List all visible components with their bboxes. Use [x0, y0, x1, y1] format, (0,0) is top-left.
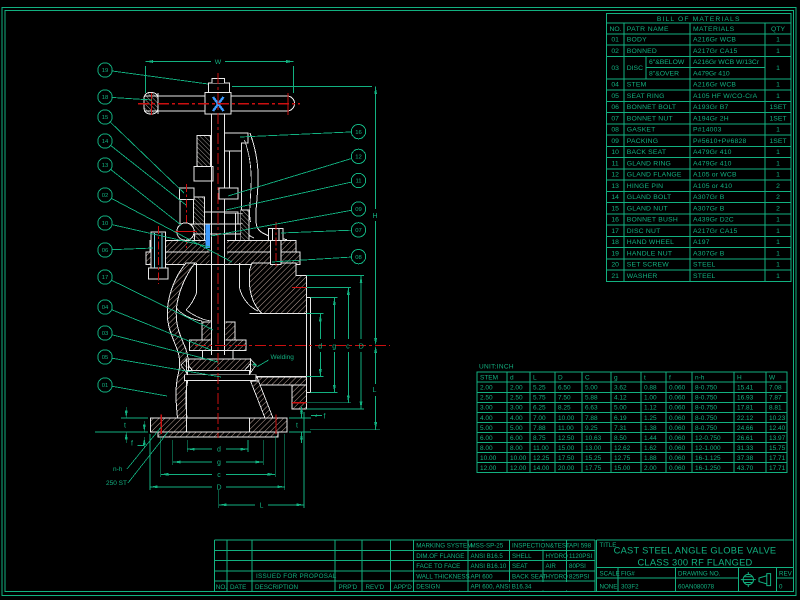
svg-text:5.25: 5.25 [533, 385, 546, 392]
svg-text:80PSI: 80PSI [569, 563, 586, 570]
svg-text:10: 10 [611, 149, 619, 156]
svg-text:12: 12 [611, 172, 619, 179]
svg-text:17.71: 17.71 [769, 455, 786, 462]
svg-text:6.25: 6.25 [533, 405, 546, 412]
svg-text:BODY: BODY [627, 37, 647, 44]
svg-text:P#14003: P#14003 [693, 127, 722, 134]
svg-text:HYDRO: HYDRO [546, 573, 569, 580]
svg-text:MATERIALS: MATERIALS [693, 26, 735, 33]
svg-text:0.060: 0.060 [669, 425, 686, 432]
svg-text:INSPECTION&TEST: INSPECTION&TEST [512, 543, 570, 550]
svg-text:10.00: 10.00 [510, 455, 527, 462]
svg-text:825PSI: 825PSI [569, 573, 590, 580]
svg-text:24.66: 24.66 [737, 425, 754, 432]
svg-text:2.00: 2.00 [644, 465, 657, 472]
svg-text:A193Gr B7: A193Gr B7 [693, 104, 728, 111]
svg-text:g: g [614, 375, 618, 382]
svg-text:A307Gr B: A307Gr B [693, 250, 725, 257]
svg-text:GLAND FLANGE: GLAND FLANGE [627, 172, 682, 179]
svg-text:303F2: 303F2 [621, 584, 639, 591]
svg-text:20: 20 [611, 262, 619, 269]
svg-text:PACKING: PACKING [627, 138, 659, 145]
svg-text:H: H [373, 213, 378, 220]
svg-text:A216Gr WCB: A216Gr WCB [693, 82, 736, 89]
svg-text:DATE: DATE [230, 584, 246, 591]
svg-text:12.25: 12.25 [533, 455, 550, 462]
svg-text:15.41: 15.41 [737, 385, 754, 392]
svg-text:UNIT:INCH: UNIT:INCH [479, 364, 514, 371]
svg-text:15.00: 15.00 [558, 445, 575, 452]
svg-text:8-0.750: 8-0.750 [695, 425, 717, 432]
svg-text:19: 19 [611, 250, 619, 257]
svg-text:8-0.750: 8-0.750 [695, 405, 717, 412]
svg-text:12.62: 12.62 [614, 445, 631, 452]
svg-text:0.060: 0.060 [669, 385, 686, 392]
svg-text:A216Gr WCB W/13Cr: A216Gr WCB W/13Cr [693, 59, 760, 66]
svg-text:2: 2 [776, 194, 780, 201]
svg-text:01: 01 [102, 383, 109, 389]
svg-text:8-0.750: 8-0.750 [695, 385, 717, 392]
svg-text:A307Gr B: A307Gr B [693, 194, 725, 201]
svg-text:14.00: 14.00 [533, 465, 550, 472]
svg-text:07: 07 [355, 228, 362, 234]
svg-text:1SET: 1SET [770, 138, 787, 145]
svg-text:t: t [124, 423, 126, 430]
svg-text:HANDLE NUT: HANDLE NUT [627, 250, 672, 257]
svg-text:3.00: 3.00 [480, 405, 493, 412]
svg-text:8.75: 8.75 [533, 435, 546, 442]
svg-text:1: 1 [776, 250, 780, 257]
svg-text:13.00: 13.00 [585, 445, 602, 452]
svg-text:16-1.125: 16-1.125 [695, 455, 721, 462]
svg-text:WASHER: WASHER [627, 273, 658, 280]
svg-text:1SET: 1SET [770, 115, 787, 122]
svg-text:0.060: 0.060 [669, 395, 686, 402]
svg-text:9.25: 9.25 [585, 425, 598, 432]
svg-text:15.00: 15.00 [614, 465, 631, 472]
svg-text:01: 01 [611, 37, 619, 44]
svg-text:03: 03 [611, 65, 619, 72]
svg-text:14: 14 [611, 194, 619, 201]
svg-text:A105 or 410: A105 or 410 [693, 183, 732, 190]
svg-text:1: 1 [776, 160, 780, 167]
svg-text:DISC: DISC [627, 65, 643, 72]
svg-text:A479Gr 410: A479Gr 410 [693, 70, 730, 77]
svg-text:08: 08 [355, 255, 362, 261]
svg-text:ANSI B16.5: ANSI B16.5 [471, 553, 504, 560]
svg-text:1: 1 [776, 273, 780, 280]
svg-text:5.00: 5.00 [480, 425, 493, 432]
svg-text:06: 06 [102, 248, 109, 254]
svg-text:06: 06 [611, 104, 619, 111]
svg-text:BILL OF MATERIALS: BILL OF MATERIALS [657, 16, 741, 23]
svg-text:STEEL: STEEL [693, 262, 716, 269]
svg-text:SEAT: SEAT [512, 563, 528, 570]
svg-text:8.00: 8.00 [480, 445, 493, 452]
svg-text:1: 1 [776, 127, 780, 134]
svg-text:d: d [318, 343, 322, 350]
svg-text:02: 02 [611, 48, 619, 55]
svg-text:f: f [669, 375, 671, 382]
svg-text:Welding: Welding [271, 354, 295, 361]
svg-text:2: 2 [776, 183, 780, 190]
svg-text:REV'D: REV'D [366, 584, 385, 591]
svg-text:10.00: 10.00 [558, 415, 575, 422]
svg-text:0.060: 0.060 [669, 455, 686, 462]
svg-text:NO.: NO. [610, 26, 622, 33]
svg-text:09: 09 [355, 207, 362, 213]
svg-text:11: 11 [612, 160, 619, 167]
svg-text:g: g [217, 460, 221, 467]
svg-text:1: 1 [776, 37, 780, 44]
svg-text:A307Gr B: A307Gr B [693, 205, 725, 212]
svg-text:GLAND BOLT: GLAND BOLT [627, 194, 672, 201]
svg-text:12.75: 12.75 [614, 455, 631, 462]
svg-text:5.00: 5.00 [510, 425, 523, 432]
svg-text:8"&OVER: 8"&OVER [649, 70, 679, 77]
svg-text:SEAT RING: SEAT RING [627, 93, 665, 100]
svg-text:L: L [260, 502, 264, 509]
svg-text:16-1.250: 16-1.250 [695, 465, 721, 472]
svg-text:WALL THICKNESS: WALL THICKNESS [416, 573, 469, 580]
svg-text:10.00: 10.00 [480, 455, 497, 462]
svg-text:MSS-SP-25: MSS-SP-25 [471, 543, 504, 550]
svg-text:8.50: 8.50 [614, 435, 627, 442]
svg-text:A105 HF W/CO-CrA: A105 HF W/CO-CrA [693, 93, 758, 100]
svg-text:250 ST: 250 ST [106, 480, 127, 487]
svg-text:11.00: 11.00 [558, 425, 574, 432]
svg-text:10: 10 [102, 221, 109, 227]
svg-text:15: 15 [611, 205, 619, 212]
svg-text:API 600, ANSI B16.34: API 600, ANSI B16.34 [471, 584, 532, 591]
svg-text:16.93: 16.93 [737, 395, 754, 402]
svg-text:D: D [359, 343, 364, 350]
svg-text:W: W [769, 375, 776, 382]
svg-text:6.63: 6.63 [585, 405, 598, 412]
svg-text:GLAND RING: GLAND RING [627, 160, 671, 167]
svg-text:8.25: 8.25 [558, 405, 571, 412]
svg-text:FACE TO FACE: FACE TO FACE [416, 563, 460, 570]
svg-text:n-h: n-h [695, 375, 705, 382]
svg-text:n-h: n-h [113, 466, 123, 473]
svg-text:13: 13 [611, 183, 619, 190]
svg-text:HAND WHEEL: HAND WHEEL [627, 239, 674, 246]
svg-text:t: t [296, 423, 298, 430]
svg-text:7.08: 7.08 [769, 385, 782, 392]
svg-text:60AN080078: 60AN080078 [678, 584, 715, 591]
svg-text:CLASS 300 RF FLANGED: CLASS 300 RF FLANGED [637, 557, 752, 567]
svg-text:ISSUED FOR PROPOSAL: ISSUED FOR PROPOSAL [256, 573, 337, 580]
svg-text:4.12: 4.12 [614, 395, 627, 402]
svg-text:NO.: NO. [216, 584, 227, 591]
svg-text:DISC NUT: DISC NUT [627, 228, 661, 235]
svg-text:1.44: 1.44 [644, 435, 657, 442]
svg-text:31.33: 31.33 [737, 445, 754, 452]
svg-text:20.00: 20.00 [558, 465, 575, 472]
svg-text:f: f [131, 441, 133, 448]
svg-text:1.88: 1.88 [644, 455, 657, 462]
svg-text:FIG#: FIG# [621, 570, 635, 577]
svg-text:11: 11 [355, 179, 361, 185]
svg-text:5.75: 5.75 [533, 395, 546, 402]
svg-text:03: 03 [102, 331, 109, 337]
svg-text:C: C [585, 375, 590, 382]
svg-text:13.97: 13.97 [769, 435, 786, 442]
svg-text:STEM: STEM [480, 375, 498, 382]
svg-text:DRAWING NO.: DRAWING NO. [678, 570, 721, 577]
svg-text:5.00: 5.00 [585, 385, 598, 392]
svg-text:3.00: 3.00 [510, 405, 523, 412]
svg-text:4.00: 4.00 [510, 415, 523, 422]
svg-text:7.00: 7.00 [533, 415, 546, 422]
svg-text:A479Gr 410: A479Gr 410 [693, 149, 732, 156]
svg-text:L: L [373, 387, 377, 394]
svg-text:1: 1 [776, 172, 780, 179]
svg-text:d: d [217, 447, 221, 454]
svg-text:1120PSI: 1120PSI [569, 553, 593, 560]
svg-text:18: 18 [102, 95, 109, 101]
svg-text:1: 1 [776, 239, 780, 246]
svg-text:0.060: 0.060 [669, 465, 686, 472]
svg-text:10.23: 10.23 [769, 415, 786, 422]
svg-text:1.00: 1.00 [644, 395, 657, 402]
svg-text:SHELL: SHELL [512, 553, 532, 560]
svg-text:1: 1 [776, 48, 780, 55]
svg-text:GLAND NUT: GLAND NUT [627, 205, 668, 212]
svg-text:BACK SEAT: BACK SEAT [627, 149, 666, 156]
svg-text:GASKET: GASKET [627, 127, 656, 134]
svg-text:H: H [737, 375, 742, 382]
svg-text:17.81: 17.81 [737, 405, 754, 412]
svg-text:13: 13 [102, 163, 109, 169]
svg-text:ANSI B16.10: ANSI B16.10 [471, 563, 507, 570]
svg-text:12-1.000: 12-1.000 [695, 445, 721, 452]
svg-text:8.00: 8.00 [510, 445, 523, 452]
svg-text:15.25: 15.25 [585, 455, 602, 462]
svg-text:1: 1 [776, 217, 780, 224]
svg-text:HINGE PIN: HINGE PIN [627, 183, 664, 190]
svg-text:11.00: 11.00 [533, 445, 549, 452]
svg-text:f: f [324, 414, 326, 421]
svg-text:22.12: 22.12 [737, 415, 754, 422]
svg-text:6.00: 6.00 [510, 435, 523, 442]
svg-text:BONNET NUT: BONNET NUT [627, 115, 673, 122]
svg-text:BONNED: BONNED [627, 48, 657, 55]
svg-text:43.70: 43.70 [737, 465, 754, 472]
svg-text:4.00: 4.00 [480, 415, 493, 422]
svg-text:7.50: 7.50 [558, 395, 571, 402]
svg-text:A217Gr CA15: A217Gr CA15 [693, 48, 738, 55]
svg-text:1: 1 [776, 82, 780, 89]
svg-text:2: 2 [776, 205, 780, 212]
svg-text:5.00: 5.00 [614, 405, 627, 412]
svg-text:15.75: 15.75 [769, 445, 786, 452]
svg-text:17.50: 17.50 [558, 455, 575, 462]
svg-text:6.00: 6.00 [480, 435, 493, 442]
svg-text:19: 19 [102, 68, 109, 74]
svg-text:0.060: 0.060 [669, 445, 686, 452]
svg-text:16: 16 [355, 130, 362, 136]
svg-text:A105 or WCB: A105 or WCB [693, 172, 737, 179]
svg-text:15: 15 [102, 115, 109, 121]
svg-text:STEEL: STEEL [693, 273, 716, 280]
svg-text:37.38: 37.38 [737, 455, 754, 462]
svg-text:c: c [217, 472, 221, 479]
svg-text:1.12: 1.12 [644, 405, 657, 412]
svg-text:SET SCREW: SET SCREW [627, 262, 669, 269]
svg-text:1: 1 [776, 149, 780, 156]
svg-text:09: 09 [611, 138, 619, 145]
svg-text:DIM.OF FLANGE: DIM.OF FLANGE [416, 553, 464, 560]
svg-text:7.88: 7.88 [533, 425, 546, 432]
svg-text:L: L [533, 375, 537, 382]
svg-text:HYDRO: HYDRO [546, 553, 569, 560]
svg-text:14: 14 [102, 139, 109, 145]
svg-text:0.060: 0.060 [669, 435, 686, 442]
svg-text:PRP'D: PRP'D [339, 584, 358, 591]
svg-text:W: W [215, 59, 222, 66]
svg-text:QTY: QTY [771, 26, 785, 33]
svg-text:12: 12 [355, 155, 362, 161]
svg-text:7.31: 7.31 [614, 425, 627, 432]
svg-text:2.00: 2.00 [480, 385, 493, 392]
svg-text:1.25: 1.25 [644, 415, 657, 422]
svg-text:7.88: 7.88 [585, 415, 598, 422]
svg-text:2.50: 2.50 [480, 395, 493, 402]
svg-text:08: 08 [611, 127, 619, 134]
svg-text:21: 21 [611, 273, 619, 280]
svg-text:SCALE: SCALE [600, 570, 620, 577]
svg-text:05: 05 [102, 355, 109, 361]
svg-text:NONE: NONE [600, 584, 618, 591]
svg-text:6"&BELOW: 6"&BELOW [649, 59, 685, 66]
svg-text:A439Gr D2C: A439Gr D2C [693, 217, 734, 224]
svg-text:P#5610+P#6828: P#5610+P#6828 [693, 138, 746, 145]
svg-text:02: 02 [102, 193, 109, 199]
svg-text:1: 1 [776, 65, 780, 72]
svg-text:BACK SEAT: BACK SEAT [512, 573, 546, 580]
svg-text:STEM: STEM [627, 82, 647, 89]
svg-text:A197: A197 [693, 239, 710, 246]
svg-text:D: D [558, 375, 563, 382]
svg-text:0.060: 0.060 [669, 405, 686, 412]
svg-text:10.63: 10.63 [585, 435, 602, 442]
svg-text:7.87: 7.87 [769, 395, 782, 402]
svg-text:8.81: 8.81 [769, 405, 782, 412]
svg-text:PATR NAME: PATR NAME [627, 26, 669, 33]
svg-text:A217Gr CA15: A217Gr CA15 [693, 228, 738, 235]
svg-text:17.71: 17.71 [769, 465, 786, 472]
svg-text:CAST STEEL ANGLE GLOBE VALVE: CAST STEEL ANGLE GLOBE VALVE [614, 546, 777, 556]
svg-text:1.62: 1.62 [644, 445, 657, 452]
svg-text:1: 1 [776, 228, 780, 235]
svg-text:1: 1 [776, 93, 780, 100]
svg-text:0.88: 0.88 [644, 385, 657, 392]
svg-text:26.61: 26.61 [737, 435, 754, 442]
svg-text:g: g [332, 343, 336, 350]
svg-text:1.38: 1.38 [644, 425, 657, 432]
svg-text:API 598: API 598 [569, 543, 592, 550]
svg-text:12.40: 12.40 [769, 425, 786, 432]
svg-text:1SET: 1SET [770, 104, 787, 111]
svg-text:AIR: AIR [546, 563, 557, 570]
svg-text:18: 18 [611, 239, 619, 246]
svg-text:16: 16 [611, 217, 619, 224]
svg-text:07: 07 [611, 115, 619, 122]
svg-text:REV: REV [779, 570, 793, 577]
svg-text:12.50: 12.50 [558, 435, 575, 442]
svg-text:MARKING SYSTEM: MARKING SYSTEM [416, 543, 472, 550]
svg-text:12.00: 12.00 [510, 465, 527, 472]
svg-text:c: c [346, 343, 350, 350]
svg-text:17: 17 [611, 228, 619, 235]
svg-text:A479Gr 410: A479Gr 410 [693, 160, 732, 167]
svg-text:BONNET BUSH: BONNET BUSH [627, 217, 678, 224]
svg-text:6.50: 6.50 [558, 385, 571, 392]
svg-text:3.62: 3.62 [614, 385, 627, 392]
svg-text:12-0.750: 12-0.750 [695, 435, 721, 442]
svg-text:0.060: 0.060 [669, 415, 686, 422]
svg-text:6.19: 6.19 [614, 415, 627, 422]
svg-text:5.88: 5.88 [585, 395, 598, 402]
svg-text:17.75: 17.75 [585, 465, 602, 472]
svg-text:04: 04 [611, 82, 619, 89]
svg-text:d: d [510, 375, 514, 382]
svg-text:0: 0 [779, 584, 783, 591]
svg-text:8-0.750: 8-0.750 [695, 395, 717, 402]
svg-text:t: t [644, 375, 646, 382]
svg-text:DESIGN: DESIGN [416, 584, 440, 591]
svg-text:8-0.750: 8-0.750 [695, 415, 717, 422]
svg-text:17: 17 [102, 275, 109, 281]
svg-text:12.00: 12.00 [480, 465, 497, 472]
svg-text:05: 05 [611, 93, 619, 100]
svg-text:2.50: 2.50 [510, 395, 523, 402]
svg-text:BONNET BOLT: BONNET BOLT [627, 104, 677, 111]
svg-text:04: 04 [102, 305, 109, 311]
svg-text:A216Gr WCB: A216Gr WCB [693, 37, 736, 44]
svg-text:API 600: API 600 [471, 573, 494, 580]
svg-text:APP'D: APP'D [394, 584, 413, 591]
svg-text:A194Gr 2H: A194Gr 2H [693, 115, 729, 122]
svg-text:DESCRIPTION: DESCRIPTION [255, 584, 298, 591]
svg-text:2.00: 2.00 [510, 385, 523, 392]
svg-text:1: 1 [776, 262, 780, 269]
